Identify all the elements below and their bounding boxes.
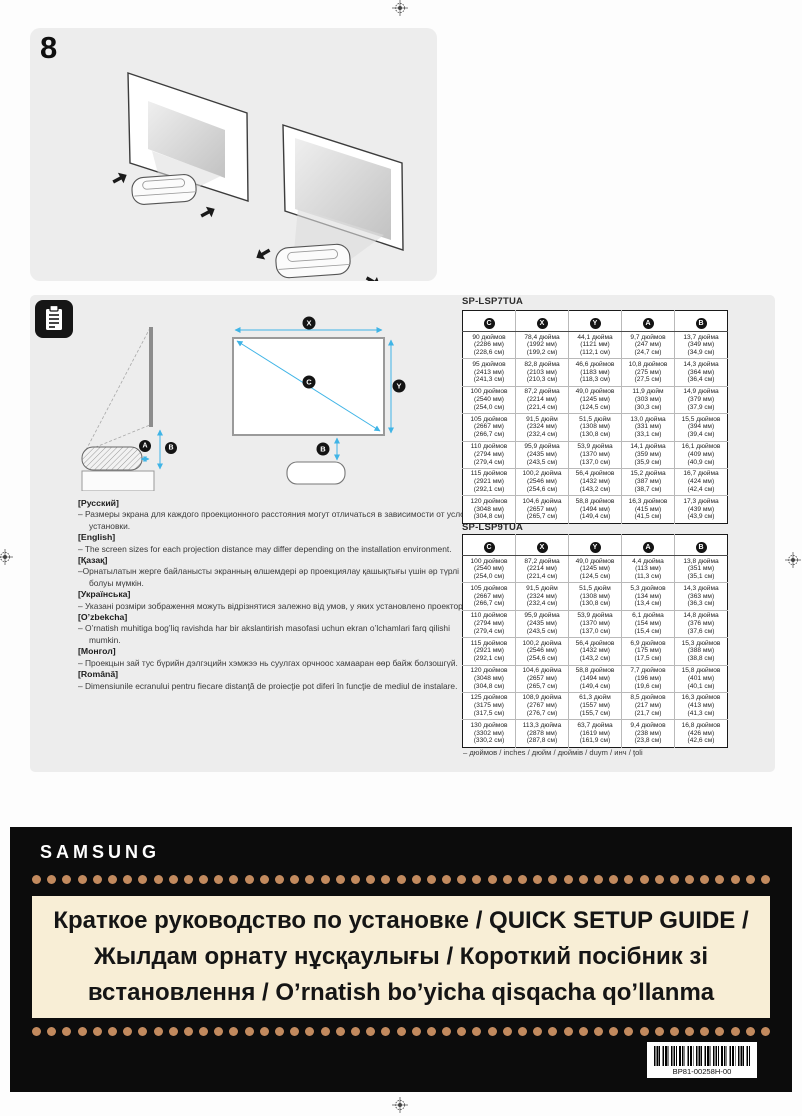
table-cell: 49,0 дюймов(1245 мм)(124,5 см) [569, 386, 622, 413]
dot [62, 1027, 71, 1036]
dots-row-top [32, 874, 770, 884]
dot [93, 1027, 102, 1036]
table-row: 100 дюймов(2540 мм)(254,0 см)87,2 дюйма(… [463, 556, 728, 583]
dot [245, 875, 254, 884]
dot [731, 875, 740, 884]
dot [746, 875, 755, 884]
table-cell: 15,8 дюймов(401 мм)(40,1 см) [675, 665, 728, 692]
table-cell: 15,3 дюймов(388 мм)(38,8 см) [675, 638, 728, 665]
dot [412, 1027, 421, 1036]
document-page: 8 [0, 0, 802, 1116]
table-cell: 61,3 дюйм(1557 мм)(155,7 см) [569, 692, 622, 719]
spec-table-lsp9: CXYAB100 дюймов(2540 мм)(254,0 см)87,2 д… [462, 534, 728, 748]
dot [685, 1027, 694, 1036]
dot [518, 875, 527, 884]
table-row: 95 дюймов(2413 мм)(241,3 см)82,8 дюйма(2… [463, 359, 728, 386]
registration-mark-bottom [392, 1097, 408, 1113]
dot [397, 1027, 406, 1036]
dot [351, 1027, 360, 1036]
dot [427, 1027, 436, 1036]
badge-c: C [303, 376, 316, 389]
table-cell: 110 дюймов(2794 мм)(279,4 см) [463, 441, 516, 468]
note-lang-label: [Монгол] [78, 646, 480, 657]
dot [351, 875, 360, 884]
dot [169, 1027, 178, 1036]
table-cell: 82,8 дюйма(2103 мм)(210,3 см) [516, 359, 569, 386]
dot [761, 1027, 770, 1036]
note-text: – Dimensiunile ecranului pentru fiecare … [78, 681, 480, 692]
table-surface [82, 471, 154, 491]
table-cell: 90 дюймов(2286 мм)(228,6 см) [463, 332, 516, 359]
note-lang-label: [O’zbekcha] [78, 612, 480, 623]
dot [594, 1027, 603, 1036]
table-cell: 14,1 дюйма(359 мм)(35,9 см) [622, 441, 675, 468]
dot [564, 1027, 573, 1036]
dot [609, 875, 618, 884]
dot [670, 875, 679, 884]
table-cell: 51,5 дюйм(1308 мм)(130,8 см) [569, 583, 622, 610]
table-cell: 110 дюймов(2794 мм)(279,4 см) [463, 610, 516, 637]
note-text: – Проекцын зай тус бүрийн дэлгэцийн хэмж… [78, 658, 480, 669]
column-badge-y: Y [590, 318, 601, 329]
svg-text:B: B [320, 445, 326, 454]
table-cell: 14,3 дюйма(364 мм)(36,4 см) [675, 359, 728, 386]
dot [503, 875, 512, 884]
table-cell: 16,7 дюйма(424 мм)(42,4 см) [675, 468, 728, 495]
table-cell: 63,7 дюйма(1619 мм)(161,9 см) [569, 720, 622, 747]
note-clipboard-icon [35, 300, 73, 338]
projector-distance-illustration [30, 28, 437, 281]
table-cell: 125 дюймов(3175 мм)(317,5 см) [463, 692, 516, 719]
table-cell: 13,8 дюйма(351 мм)(35,1 см) [675, 556, 728, 583]
note-romanian: [Română] – Dimensiunile ecranului pentru… [78, 669, 480, 692]
registration-mark-top [392, 0, 408, 16]
dot [746, 1027, 755, 1036]
table-cell: 16,1 дюймов(409 мм)(40,9 см) [675, 441, 728, 468]
dot [715, 1027, 724, 1036]
table-row: 130 дюймов(3302 мм)(330,2 см)113,3 дюйма… [463, 720, 728, 747]
column-badge-b: B [696, 542, 707, 553]
column-badge-x: X [537, 318, 548, 329]
registration-mark-left [0, 549, 13, 565]
dot [47, 1027, 56, 1036]
dot [290, 1027, 299, 1036]
barcode-bars [654, 1046, 750, 1066]
dot [214, 875, 223, 884]
table-cell: 91,5 дюйм(2324 мм)(232,4 см) [516, 414, 569, 441]
svg-text:A: A [142, 443, 147, 450]
table-title-lsp9: SP-LSP9TUA [462, 522, 523, 533]
table-cell: 13,7 дюйма(349 мм)(34,9 см) [675, 332, 728, 359]
dot [472, 1027, 481, 1036]
dot [518, 1027, 527, 1036]
dot [169, 875, 178, 884]
table-cell: 44,1 дюйма(1121 мм)(112,1 см) [569, 332, 622, 359]
table-cell: 100,2 дюйма(2546 мм)(254,6 см) [516, 468, 569, 495]
dot [154, 875, 163, 884]
table-cell: 49,0 дюймов(1245 мм)(124,5 см) [569, 556, 622, 583]
note-text: – The screen sizes for each projection d… [78, 544, 480, 555]
note-uzbek: [O’zbekcha] – O’rnatish muhitiga bog’liq… [78, 612, 480, 646]
step-8-panel: 8 [30, 28, 437, 281]
table-cell: 5,3 дюймов(134 мм)(13,4 см) [622, 583, 675, 610]
dot [108, 1027, 117, 1036]
dot [533, 1027, 542, 1036]
table-cell: 14,3 дюйма(363 мм)(36,3 см) [675, 583, 728, 610]
column-badge-x: X [537, 542, 548, 553]
table-cell: 115 дюймов(2921 мм)(292,1 см) [463, 638, 516, 665]
dot [290, 875, 299, 884]
note-lang-label: [Русский] [78, 498, 480, 509]
column-badge-a: A [643, 542, 654, 553]
note-lang-label: [English] [78, 532, 480, 543]
table-cell: 120 дюймов(3048 мм)(304,8 см) [463, 496, 516, 523]
dot [214, 1027, 223, 1036]
samsung-logo: SAMSUNG [40, 842, 160, 863]
svg-text:Y: Y [396, 382, 401, 391]
table-cell: 53,9 дюйма(1370 мм)(137,0 см) [569, 441, 622, 468]
dot [32, 875, 41, 884]
note-lang-label: [Қазақ] [78, 555, 480, 566]
table-cell: 58,8 дюймов(1494 мм)(149,4 см) [569, 665, 622, 692]
table-cell: 13,0 дюйма(331 мм)(33,1 см) [622, 414, 675, 441]
column-badge-c: C [484, 318, 495, 329]
badge-a: A [139, 440, 151, 452]
dot [503, 1027, 512, 1036]
table-row: 110 дюймов(2794 мм)(279,4 см)95,9 дюйма(… [463, 441, 728, 468]
table-cell: 51,5 дюйм(1308 мм)(130,8 см) [569, 414, 622, 441]
column-badge-b: B [696, 318, 707, 329]
table-cell: 95 дюймов(2413 мм)(241,3 см) [463, 359, 516, 386]
table-cell: 8,5 дюймов(217 мм)(21,7 см) [622, 692, 675, 719]
table-cell: 17,3 дюйма(439 мм)(43,9 см) [675, 496, 728, 523]
dot [761, 875, 770, 884]
projector-front [287, 462, 345, 484]
dot [685, 875, 694, 884]
table-cell: 16,3 дюймов(415 мм)(41,5 см) [622, 496, 675, 523]
front-view-diagram: X Y C B [225, 310, 455, 495]
svg-text:X: X [306, 319, 311, 328]
table-cell: 91,5 дюйм(2324 мм)(232,4 см) [516, 583, 569, 610]
dot [336, 875, 345, 884]
guide-title: Краткое руководство по установке / QUICK… [32, 903, 770, 1011]
dot [579, 1027, 588, 1036]
dot [275, 875, 284, 884]
table-cell: 15,5 дюймов(394 мм)(39,4 см) [675, 414, 728, 441]
language-notes: [Русский] – Размеры экрана для каждого п… [78, 498, 480, 692]
table-row: 100 дюймов(2540 мм)(254,0 см)87,2 дюйма(… [463, 386, 728, 413]
table-cell: 6,9 дюймов(175 мм)(17,5 см) [622, 638, 675, 665]
note-english: [English] – The screen sizes for each pr… [78, 532, 480, 555]
dot [427, 875, 436, 884]
spec-table-lsp7: CXYAB90 дюймов(2286 мм)(228,6 см)78,4 дю… [462, 310, 728, 524]
screen-side-bar [149, 327, 153, 427]
dot [624, 875, 633, 884]
dot [457, 1027, 466, 1036]
table-cell: 87,2 дюйма(2214 мм)(221,4 см) [516, 386, 569, 413]
table-cell: 105 дюймов(2667 мм)(266,7 см) [463, 583, 516, 610]
table-cell: 10,8 дюймов(275 мм)(27,5 см) [622, 359, 675, 386]
dot [397, 875, 406, 884]
table-cell: 100 дюймов(2540 мм)(254,0 см) [463, 556, 516, 583]
table-cell: 87,2 дюйма(2214 мм)(221,4 см) [516, 556, 569, 583]
dot [366, 875, 375, 884]
dot [442, 1027, 451, 1036]
table-cell: 7,7 дюймов(196 мм)(19,6 см) [622, 665, 675, 692]
dot [229, 1027, 238, 1036]
dot [305, 1027, 314, 1036]
dot [305, 875, 314, 884]
table-cell: 14,8 дюйма(376 мм)(37,6 см) [675, 610, 728, 637]
dot [488, 1027, 497, 1036]
dot [199, 875, 208, 884]
table-cell: 105 дюймов(2667 мм)(266,7 см) [463, 414, 516, 441]
table-row: 105 дюймов(2667 мм)(266,7 см)91,5 дюйм(2… [463, 414, 728, 441]
dot [442, 875, 451, 884]
dots-row-bottom [32, 1026, 770, 1036]
dot [154, 1027, 163, 1036]
note-russian: [Русский] – Размеры экрана для каждого п… [78, 498, 480, 532]
dot [336, 1027, 345, 1036]
dot [93, 875, 102, 884]
dot [199, 1027, 208, 1036]
svg-text:B: B [168, 445, 173, 452]
table-cell: 120 дюймов(3048 мм)(304,8 см) [463, 665, 516, 692]
dot [123, 875, 132, 884]
dot [731, 1027, 740, 1036]
table-row: 105 дюймов(2667 мм)(266,7 см)91,5 дюйм(2… [463, 583, 728, 610]
registration-mark-right [785, 552, 801, 568]
column-badge-y: Y [590, 542, 601, 553]
table-cell: 104,6 дюйма(2657 мм)(265,7 см) [516, 665, 569, 692]
dot [640, 875, 649, 884]
table-cell: 14,9 дюйма(379 мм)(37,9 см) [675, 386, 728, 413]
table-cell: 6,1 дюйма(154 мм)(15,4 см) [622, 610, 675, 637]
dot [640, 1027, 649, 1036]
table-cell: 9,4 дюймов(238 мм)(23,8 см) [622, 720, 675, 747]
table-cell: 4,4 дюйма(113 мм)(11,3 см) [622, 556, 675, 583]
dot [321, 1027, 330, 1036]
dot [275, 1027, 284, 1036]
dot [655, 875, 664, 884]
note-text: – O’rnatish muhitiga bog’liq ravishda ha… [78, 623, 480, 646]
badge-x: X [303, 317, 316, 330]
table-row: 115 дюймов(2921 мм)(292,1 см)100,2 дюйма… [463, 468, 728, 495]
column-badge-c: C [484, 542, 495, 553]
dot [457, 875, 466, 884]
table-cell: 108,9 дюйма(2767 мм)(276,7 см) [516, 692, 569, 719]
table-row: 125 дюймов(3175 мм)(317,5 см)108,9 дюйма… [463, 692, 728, 719]
table-row: 120 дюймов(3048 мм)(304,8 см)104,6 дюйма… [463, 496, 728, 523]
note-lang-label: [Română] [78, 669, 480, 680]
table-cell: 46,6 дюймов(1183 мм)(118,3 см) [569, 359, 622, 386]
dot [62, 875, 71, 884]
table-cell: 104,6 дюйма(2657 мм)(265,7 см) [516, 496, 569, 523]
dot [138, 1027, 147, 1036]
table-row: 90 дюймов(2286 мм)(228,6 см)78,4 дюйма(1… [463, 332, 728, 359]
table-cell: 95,9 дюйма(2435 мм)(243,5 см) [516, 441, 569, 468]
note-lang-label: [Українська] [78, 589, 480, 600]
note-text: – Указані розміри зображення можуть відр… [78, 601, 480, 612]
dot [381, 875, 390, 884]
table-cell: 56,4 дюймов(1432 мм)(143,2 см) [569, 468, 622, 495]
dot [245, 1027, 254, 1036]
note-ukrainian: [Українська] – Указані розміри зображенн… [78, 589, 480, 612]
tables-footnote: – дюймов / inches / дюйм / дюймів / duym… [463, 748, 643, 757]
dot [579, 875, 588, 884]
dot [184, 1027, 193, 1036]
dot [47, 875, 56, 884]
badge-b-front: B [317, 443, 330, 456]
dot [123, 1027, 132, 1036]
table-cell: 16,3 дюймов(413 мм)(41,3 см) [675, 692, 728, 719]
dot [229, 875, 238, 884]
dot [366, 1027, 375, 1036]
dot [260, 1027, 269, 1036]
table-cell: 113,3 дюйма(2878 мм)(287,8 см) [516, 720, 569, 747]
table-cell: 11,9 дюйм(303 мм)(30,3 см) [622, 386, 675, 413]
note-text: – Размеры экрана для каждого проекционно… [78, 509, 480, 532]
dot [184, 875, 193, 884]
table-cell: 78,4 дюйма(1992 мм)(199,2 см) [516, 332, 569, 359]
guide-title-box: Краткое руководство по установке / QUICK… [32, 896, 770, 1018]
dot [548, 875, 557, 884]
table-row: 115 дюймов(2921 мм)(292,1 см)100,2 дюйма… [463, 638, 728, 665]
table-cell: 56,4 дюймов(1432 мм)(143,2 см) [569, 638, 622, 665]
svg-text:C: C [306, 378, 312, 387]
badge-b: B [165, 442, 177, 454]
side-view-diagram: A B [70, 313, 195, 491]
table-row: 120 дюймов(3048 мм)(304,8 см)104,6 дюйма… [463, 665, 728, 692]
table-cell: 53,9 дюйма(1370 мм)(137,0 см) [569, 610, 622, 637]
dot [412, 875, 421, 884]
table-cell: 115 дюймов(2921 мм)(292,1 см) [463, 468, 516, 495]
table-cell: 15,2 дюйма(387 мм)(38,7 см) [622, 468, 675, 495]
note-kazakh: [Қазақ] –Орнатылатын жерге байланысты эк… [78, 555, 480, 589]
screen-size-section: A B X [30, 295, 775, 772]
dot [533, 875, 542, 884]
barcode: BP81-00258H-00 [647, 1042, 757, 1078]
dot [700, 1027, 709, 1036]
dot [700, 875, 709, 884]
step-number: 8 [40, 30, 57, 66]
dot [472, 875, 481, 884]
dot [78, 1027, 87, 1036]
dot [548, 1027, 557, 1036]
dot [108, 875, 117, 884]
barcode-text: BP81-00258H-00 [647, 1067, 757, 1076]
dot [564, 875, 573, 884]
table-cell: 130 дюймов(3302 мм)(330,2 см) [463, 720, 516, 747]
table-cell: 95,9 дюйма(2435 мм)(243,5 см) [516, 610, 569, 637]
table-title-lsp7: SP-LSP7TUA [462, 296, 523, 307]
dot [78, 875, 87, 884]
dot [624, 1027, 633, 1036]
dot [260, 875, 269, 884]
table-cell: 9,7 дюймов(247 мм)(24,7 см) [622, 332, 675, 359]
dot [670, 1027, 679, 1036]
table-cell: 16,8 дюймов(426 мм)(42,6 см) [675, 720, 728, 747]
column-badge-a: A [643, 318, 654, 329]
table-cell: 100 дюймов(2540 мм)(254,0 см) [463, 386, 516, 413]
note-text: –Орнатылатын жерге байланысты экранның ө… [78, 566, 480, 589]
dot [138, 875, 147, 884]
dot [715, 875, 724, 884]
projector-side [82, 447, 142, 470]
dot [655, 1027, 664, 1036]
dot [321, 875, 330, 884]
cover-banner: SAMSUNG Краткое руководство по установке… [10, 827, 792, 1092]
dot [609, 1027, 618, 1036]
table-cell: 58,8 дюймов(1494 мм)(149,4 см) [569, 496, 622, 523]
dot [32, 1027, 41, 1036]
table-cell: 100,2 дюйма(2546 мм)(254,6 см) [516, 638, 569, 665]
dot [594, 875, 603, 884]
table-row: 110 дюймов(2794 мм)(279,4 см)95,9 дюйма(… [463, 610, 728, 637]
badge-y: Y [393, 380, 406, 393]
note-mongolian: [Монгол] – Проекцын зай тус бүрийн дэлгэ… [78, 646, 480, 669]
dot [381, 1027, 390, 1036]
dot [488, 875, 497, 884]
